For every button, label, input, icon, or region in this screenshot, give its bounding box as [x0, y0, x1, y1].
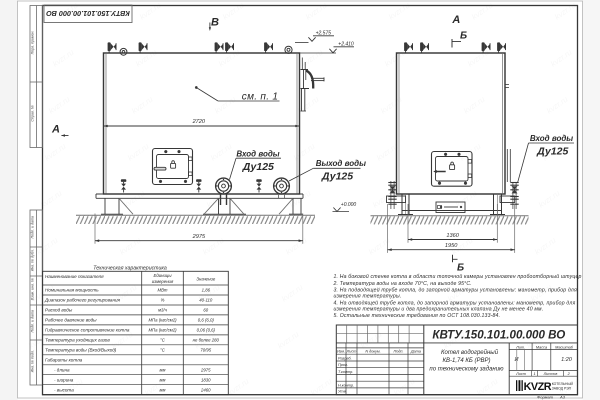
svg-text:Н.контр.: Н.контр. [338, 383, 354, 387]
svg-text:Формат: Формат [537, 394, 554, 399]
svg-text:Ду125: Ду125 [536, 145, 568, 157]
svg-text:Техническая характеристика: Техническая характеристика [93, 265, 167, 271]
svg-text:Справ. №: Справ. № [31, 105, 35, 121]
svg-text:не более 280: не более 280 [193, 338, 220, 343]
svg-text:70/95: 70/95 [200, 348, 211, 353]
svg-text:Пров.: Пров. [338, 363, 348, 367]
svg-text:Рабочее давление воды: Рабочее давление воды [45, 318, 97, 323]
svg-text:4. На отводящей трубе котла,: 4. На отводящей трубе котла, до запорной… [334, 299, 576, 306]
svg-text:Ду125: Ду125 [321, 171, 353, 183]
svg-text:Единицы: Единицы [153, 273, 172, 278]
svg-text:В: В [211, 17, 219, 29]
svg-text:%: % [161, 298, 165, 303]
svg-text:Утв.: Утв. [338, 390, 347, 394]
svg-text:Температура уходящих газов: Температура уходящих газов [45, 338, 110, 343]
svg-text:Котел водогрейный: Котел водогрейный [441, 349, 499, 356]
svg-text:мм: мм [160, 367, 166, 372]
svg-text:А3: А3 [559, 394, 566, 399]
svg-text:2975: 2975 [192, 234, 206, 240]
svg-text:Гидравлическое сопротивление к: Гидравлическое сопротивление котла [45, 328, 130, 333]
svg-text:KVZR: KVZR [524, 381, 552, 393]
svg-text:МВт: МВт [157, 288, 167, 293]
svg-text:Разраб.: Разраб. [338, 356, 352, 360]
svg-text:Номинальная мощность: Номинальная мощность [45, 288, 99, 293]
svg-text:Температура воды (Вход/Выход): Температура воды (Вход/Выход) [45, 348, 117, 353]
svg-text:0,06 (0,6): 0,06 (0,6) [197, 328, 216, 333]
svg-text:Перв. примен.: Перв. примен. [31, 31, 35, 55]
svg-text:Масштаб: Масштаб [555, 345, 574, 349]
svg-text:А: А [451, 14, 460, 26]
svg-text:40-110: 40-110 [199, 298, 213, 303]
svg-text:Лист: Лист [346, 350, 357, 354]
svg-text:Масса: Масса [536, 345, 547, 349]
svg-text:1360: 1360 [446, 233, 459, 239]
svg-text:Т.контр.: Т.контр. [338, 370, 353, 374]
svg-text:- ширина: - ширина [54, 377, 74, 382]
svg-text:по техническому заданию: по техническому заданию [429, 366, 504, 372]
svg-text:Наименование показателя: Наименование показателя [45, 274, 104, 279]
svg-text:0,6 (6,0): 0,6 (6,0) [198, 318, 215, 323]
svg-text:Расход воды: Расход воды [45, 308, 73, 313]
svg-text:1950: 1950 [445, 243, 458, 249]
svg-text:5. Остальные технические треб: 5. Остальные технические требования по О… [334, 313, 501, 319]
svg-text:МПа (кгс/см2): МПа (кгс/см2) [148, 318, 177, 323]
svg-text:2. Температура воды на входе: 2. Температура воды на входе 70°С, на вы… [333, 281, 472, 287]
svg-text:- длина: - длина [54, 367, 70, 372]
svg-text:60: 60 [203, 308, 208, 313]
svg-text:+0.000: +0.000 [341, 202, 357, 208]
svg-text:Б: Б [460, 31, 467, 42]
svg-text:Вход воды: Вход воды [530, 134, 573, 143]
svg-text:измерения температуры.: измерения температуры. [334, 294, 402, 300]
svg-text:2975: 2975 [200, 367, 211, 372]
svg-text:МПа (кгс/см2): МПа (кгс/см2) [148, 328, 177, 333]
svg-text:Инв. № подл.: Инв. № подл. [31, 350, 35, 372]
svg-text:Подп. и дата: Подп. и дата [31, 310, 35, 333]
svg-text:Изм.: Изм. [337, 350, 345, 354]
svg-text:Значение: Значение [196, 277, 215, 282]
svg-text:И: И [515, 357, 519, 363]
svg-text:КВТУ.150.101.00.000 ВО: КВТУ.150.101.00.000 ВО [432, 329, 565, 342]
svg-text:Диапазон рабочего регулировани: Диапазон рабочего регулирования [44, 298, 121, 303]
svg-text:мм: мм [160, 377, 166, 382]
svg-text:Листов: Листов [543, 372, 558, 376]
svg-text:А: А [51, 124, 60, 136]
svg-text:КВТУ.150.101.00.000 ВО: КВТУ.150.101.00.000 ВО [46, 9, 130, 18]
svg-text:измерения: измерения [152, 279, 174, 284]
svg-text:м3/ч: м3/ч [158, 308, 168, 313]
svg-text:Вход воды: Вход воды [236, 149, 279, 158]
svg-text:Подп.: Подп. [393, 350, 403, 354]
svg-text:Инв. № дубл.: Инв. № дубл. [31, 249, 35, 271]
svg-text:КВ-1,74 КБ (РВР): КВ-1,74 КБ (РВР) [443, 358, 491, 364]
svg-text:1: 1 [533, 372, 535, 376]
svg-text:мм: мм [160, 387, 166, 392]
svg-text:Выход воды: Выход воды [316, 159, 366, 168]
svg-text:N докум.: N докум. [365, 350, 380, 354]
svg-text:Подп. и дата: Подп. и дата [31, 216, 35, 239]
svg-text:1. На боковой стенке котла в: 1. На боковой стенке котла в области топ… [334, 273, 582, 280]
svg-text:Б: Б [457, 262, 464, 273]
svg-text:1830: 1830 [201, 377, 211, 382]
svg-text:Лит.: Лит. [515, 345, 525, 349]
svg-text:2460: 2460 [200, 387, 211, 392]
svg-text:- высота: - высота [54, 387, 74, 392]
svg-text:измерения температуры и два пр: измерения температуры и два предохраните… [334, 306, 544, 312]
svg-text:Взам. инв. №: Взам. инв. № [31, 278, 35, 300]
svg-text:Дата: Дата [410, 350, 421, 354]
svg-text:Лист: Лист [515, 372, 526, 376]
svg-text:2720: 2720 [192, 119, 206, 125]
svg-text:КОТЕЛЬНЫЙ: КОТЕЛЬНЫЙ [552, 382, 574, 386]
svg-text:Ду125: Ду125 [242, 161, 274, 173]
svg-text:см. п. 1: см. п. 1 [242, 91, 278, 102]
svg-text:ЗАВОД РЭП: ЗАВОД РЭП [552, 387, 572, 391]
svg-text:1:20: 1:20 [561, 357, 573, 363]
svg-text:Габариты котла: Габариты котла [45, 358, 83, 363]
svg-text:1,86: 1,86 [202, 288, 211, 293]
